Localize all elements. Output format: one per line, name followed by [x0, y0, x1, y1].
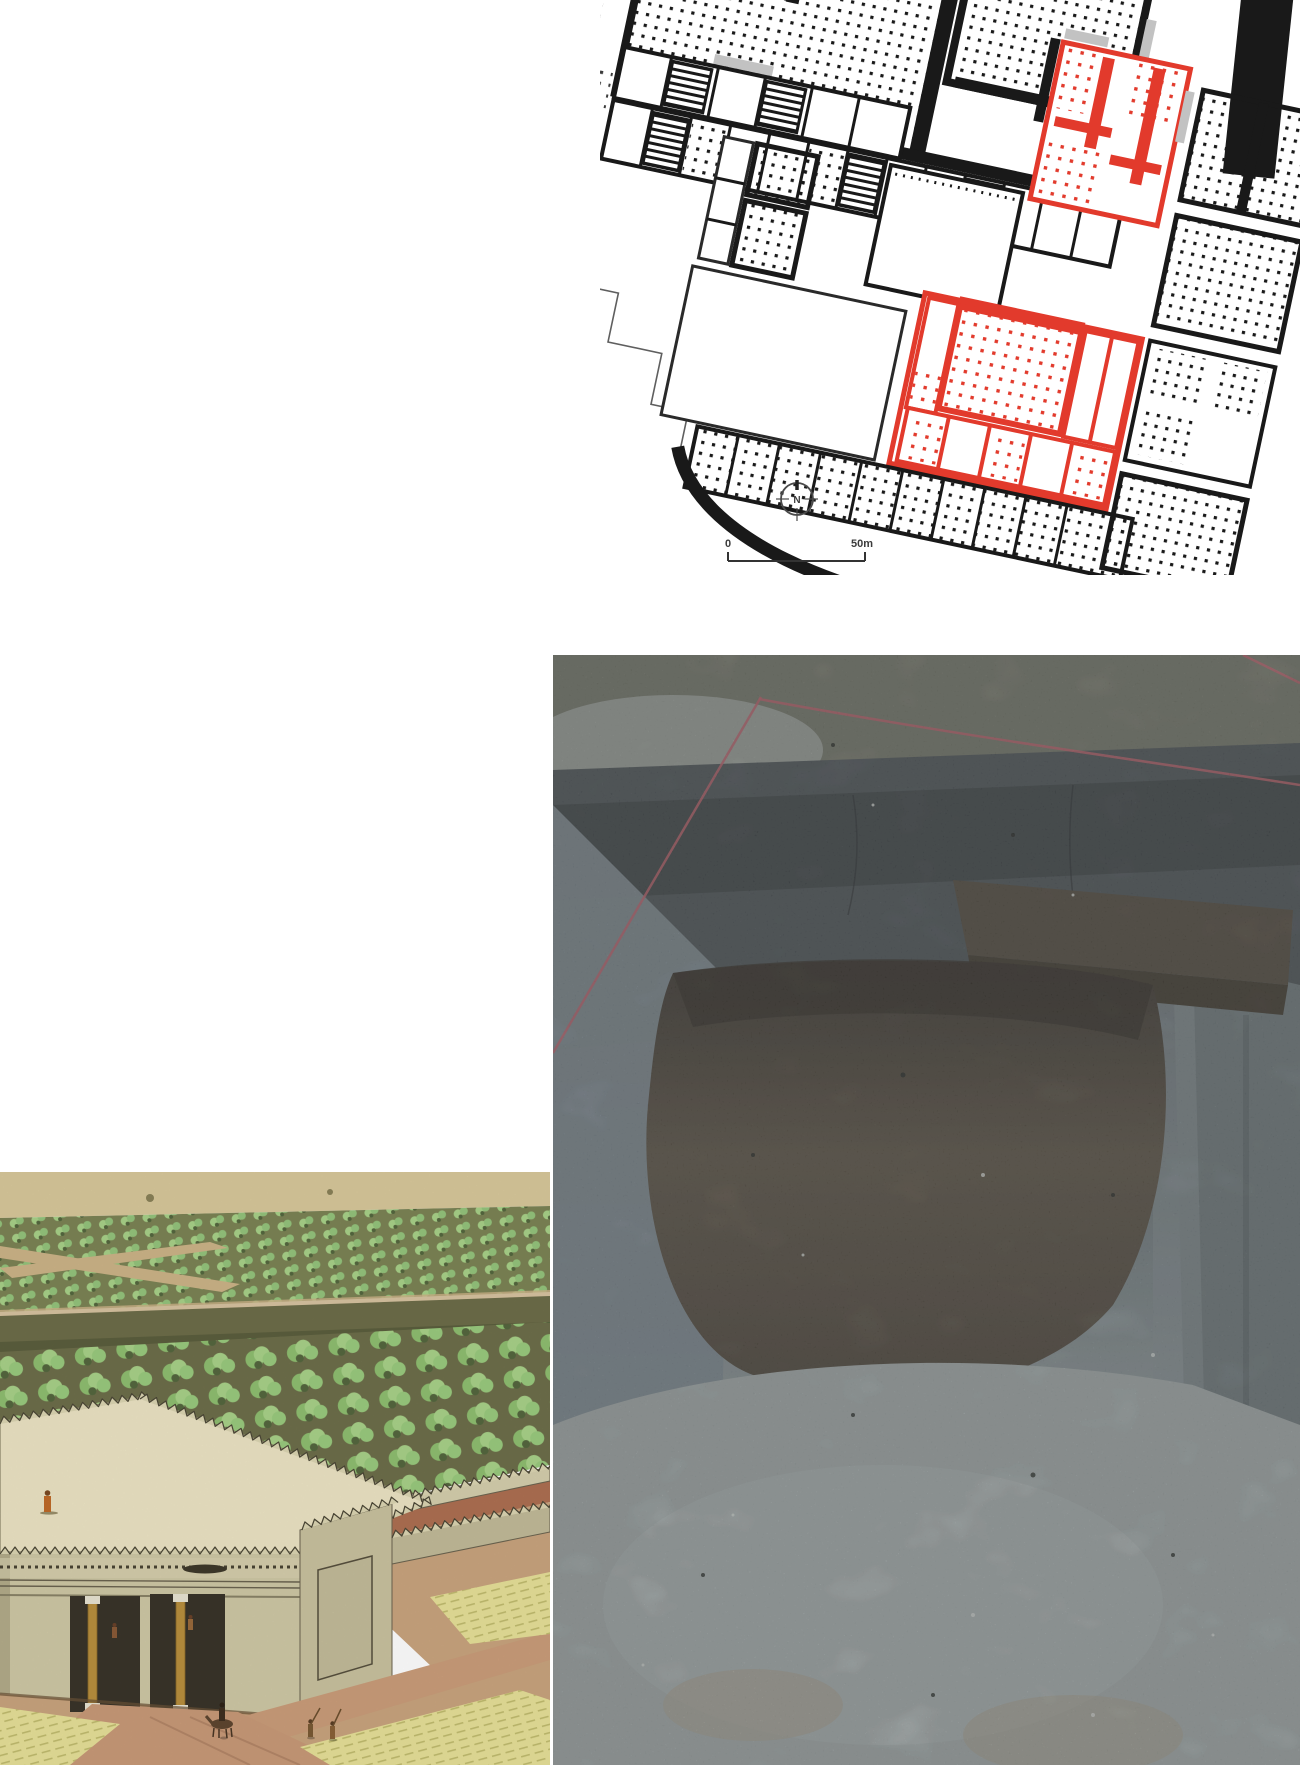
- palace-plan: N 0 50m: [600, 0, 1300, 575]
- garden-reconstruction: [0, 1172, 550, 1765]
- north-label: N: [793, 495, 800, 506]
- photo-grain: [553, 655, 1300, 1765]
- illustration-grain: [0, 1172, 550, 1765]
- excavation-photo: [553, 655, 1300, 1765]
- plan-drawing: [600, 0, 1300, 575]
- central-courtyard: [866, 165, 1023, 312]
- scale-start-label: 0: [725, 538, 731, 550]
- excavation-photo-figure: [553, 655, 1300, 1765]
- scale-end-label: 50m: [851, 538, 873, 550]
- dotted-patch: [600, 0, 611, 23]
- page: N 0 50m: [0, 0, 1300, 1765]
- garden-reconstruction-figure: [0, 1172, 550, 1765]
- palace-plan-figure: N 0 50m: [600, 0, 1300, 575]
